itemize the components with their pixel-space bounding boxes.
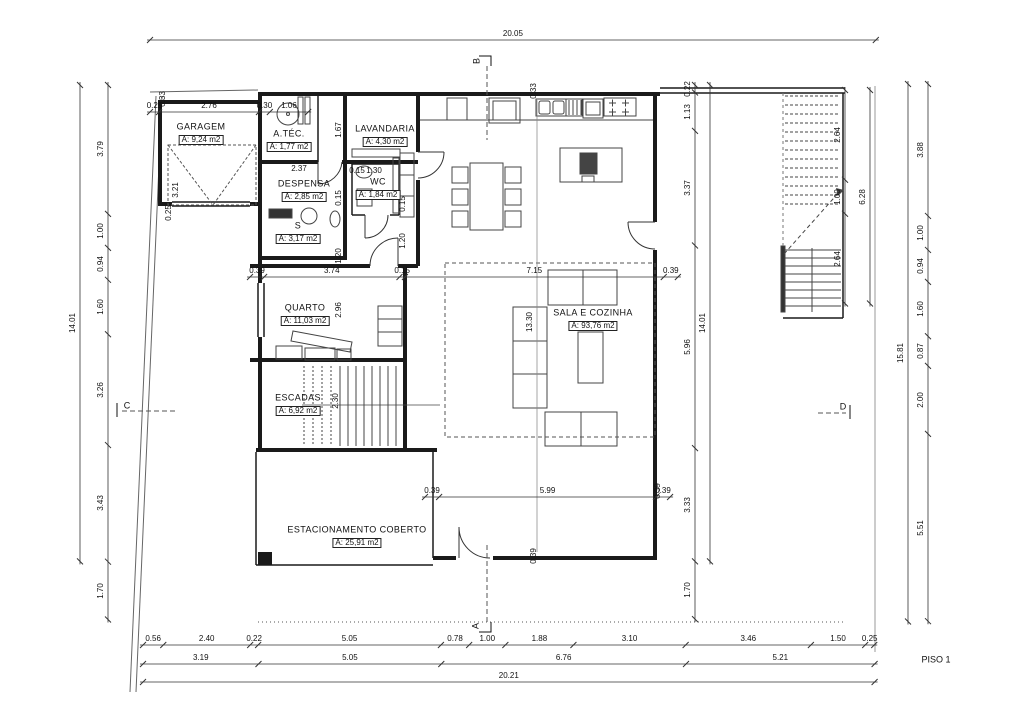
sofa-set (513, 270, 617, 446)
exterior-stairs (781, 93, 844, 312)
interior-stairs (302, 366, 440, 446)
bedroom-furniture (276, 306, 402, 360)
laundry-counter (352, 149, 400, 157)
floor-plan-sheet: PISO 1 20.050.252.760.301.060.393.740.15… (0, 0, 1010, 720)
bathroom-fixtures (269, 208, 340, 227)
walls-thin (172, 88, 845, 565)
parking-column (258, 552, 272, 565)
dashed-overlays (117, 56, 850, 632)
floor-plan-drawing (0, 0, 1010, 720)
kitchen-fixtures (420, 98, 653, 182)
dimension-lines (77, 37, 931, 685)
dining-set (452, 163, 521, 230)
water-heater (277, 97, 310, 125)
wc-fixtures (356, 166, 372, 206)
